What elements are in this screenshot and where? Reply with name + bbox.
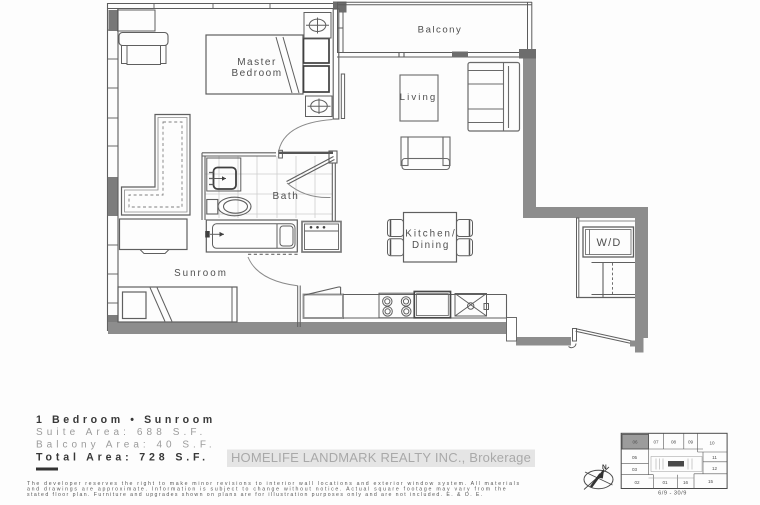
- svg-text:11: 11: [712, 455, 717, 460]
- svg-text:15: 15: [708, 479, 714, 484]
- svg-text:1 Bedroom • Sunroom: 1 Bedroom • Sunroom: [36, 414, 216, 426]
- svg-text:09: 09: [688, 440, 694, 445]
- svg-text:01: 01: [662, 480, 668, 485]
- svg-text:02: 02: [634, 480, 640, 485]
- svg-text:Kitchen/: Kitchen/: [405, 229, 456, 240]
- svg-text:Balcony Area: 40 S.F.: Balcony Area: 40 S.F.: [36, 439, 216, 450]
- svg-text:N: N: [602, 464, 607, 471]
- svg-text:Bedroom: Bedroom: [231, 68, 282, 79]
- svg-text:03: 03: [632, 467, 638, 472]
- svg-text:Living: Living: [400, 92, 438, 103]
- svg-text:Balcony: Balcony: [418, 25, 463, 36]
- svg-text:Sunroom: Sunroom: [174, 268, 228, 279]
- svg-text:Bath: Bath: [273, 191, 300, 202]
- svg-text:Suite Area: 688 S.F.: Suite Area: 688 S.F.: [36, 427, 206, 438]
- svg-text:HOMELIFE LANDMARK REALTY INC.,: HOMELIFE LANDMARK REALTY INC., Brokerage: [231, 450, 531, 465]
- svg-text:12: 12: [712, 466, 718, 471]
- svg-text:16: 16: [683, 480, 689, 485]
- svg-text:07: 07: [653, 440, 659, 445]
- svg-text:6/9 - 30/9: 6/9 - 30/9: [658, 491, 687, 497]
- svg-text:Dining: Dining: [412, 240, 450, 251]
- svg-text:10: 10: [709, 441, 715, 446]
- svg-text:06: 06: [632, 440, 638, 445]
- svg-text:stated floor plan. Furniture a: stated floor plan. Furniture and upgrade…: [27, 492, 484, 498]
- svg-text:Total Area: 728 S.F.: Total Area: 728 S.F.: [36, 451, 209, 463]
- svg-text:05: 05: [632, 455, 638, 460]
- svg-text:Master: Master: [237, 57, 277, 68]
- svg-text:08: 08: [671, 440, 677, 445]
- svg-text:W/D: W/D: [597, 237, 622, 249]
